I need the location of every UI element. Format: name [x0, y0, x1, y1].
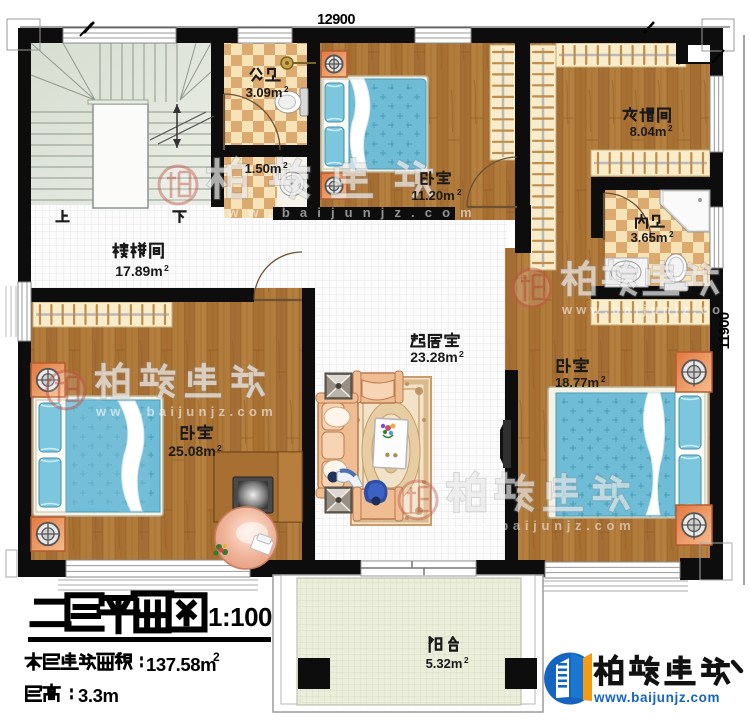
- svg-text:3.09m: 3.09m: [246, 85, 283, 100]
- svg-text:12900: 12900: [317, 12, 355, 28]
- svg-text:8.04m: 8.04m: [630, 124, 667, 139]
- svg-text:2: 2: [601, 375, 606, 384]
- svg-text:2: 2: [457, 188, 462, 197]
- svg-text:www.baijunjz.com: www.baijunjz.com: [593, 690, 720, 705]
- svg-text:25.08m: 25.08m: [168, 443, 215, 459]
- svg-text:11.20m: 11.20m: [411, 188, 454, 203]
- svg-text:2: 2: [284, 85, 289, 94]
- svg-text:2: 2: [217, 443, 222, 453]
- svg-text:2: 2: [668, 124, 673, 133]
- svg-text:www.baijunjz.com: www.baijunjz.com: [447, 518, 635, 533]
- svg-text:137.58m: 137.58m: [146, 654, 216, 675]
- svg-text:17.89m: 17.89m: [115, 263, 162, 279]
- svg-text:1:100: 1:100: [208, 602, 272, 632]
- svg-text:3.3m: 3.3m: [78, 685, 119, 706]
- svg-text:5.32m: 5.32m: [426, 656, 463, 671]
- svg-text:www.baijunjz.com: www.baijunjz.com: [207, 205, 482, 220]
- svg-text:1.50m: 1.50m: [245, 161, 282, 176]
- svg-text:www.baijunjz.com: www.baijunjz.com: [95, 404, 277, 419]
- svg-text:2: 2: [669, 230, 674, 239]
- svg-text:2: 2: [283, 160, 288, 170]
- svg-text:2: 2: [459, 349, 464, 359]
- svg-text:2: 2: [464, 656, 469, 665]
- svg-text:2: 2: [164, 263, 169, 273]
- svg-text:11900: 11900: [717, 312, 733, 349]
- svg-text:18.77m: 18.77m: [555, 375, 599, 390]
- svg-text:2: 2: [213, 650, 220, 664]
- svg-text:23.28m: 23.28m: [410, 349, 457, 365]
- svg-text:3.65m: 3.65m: [631, 230, 668, 245]
